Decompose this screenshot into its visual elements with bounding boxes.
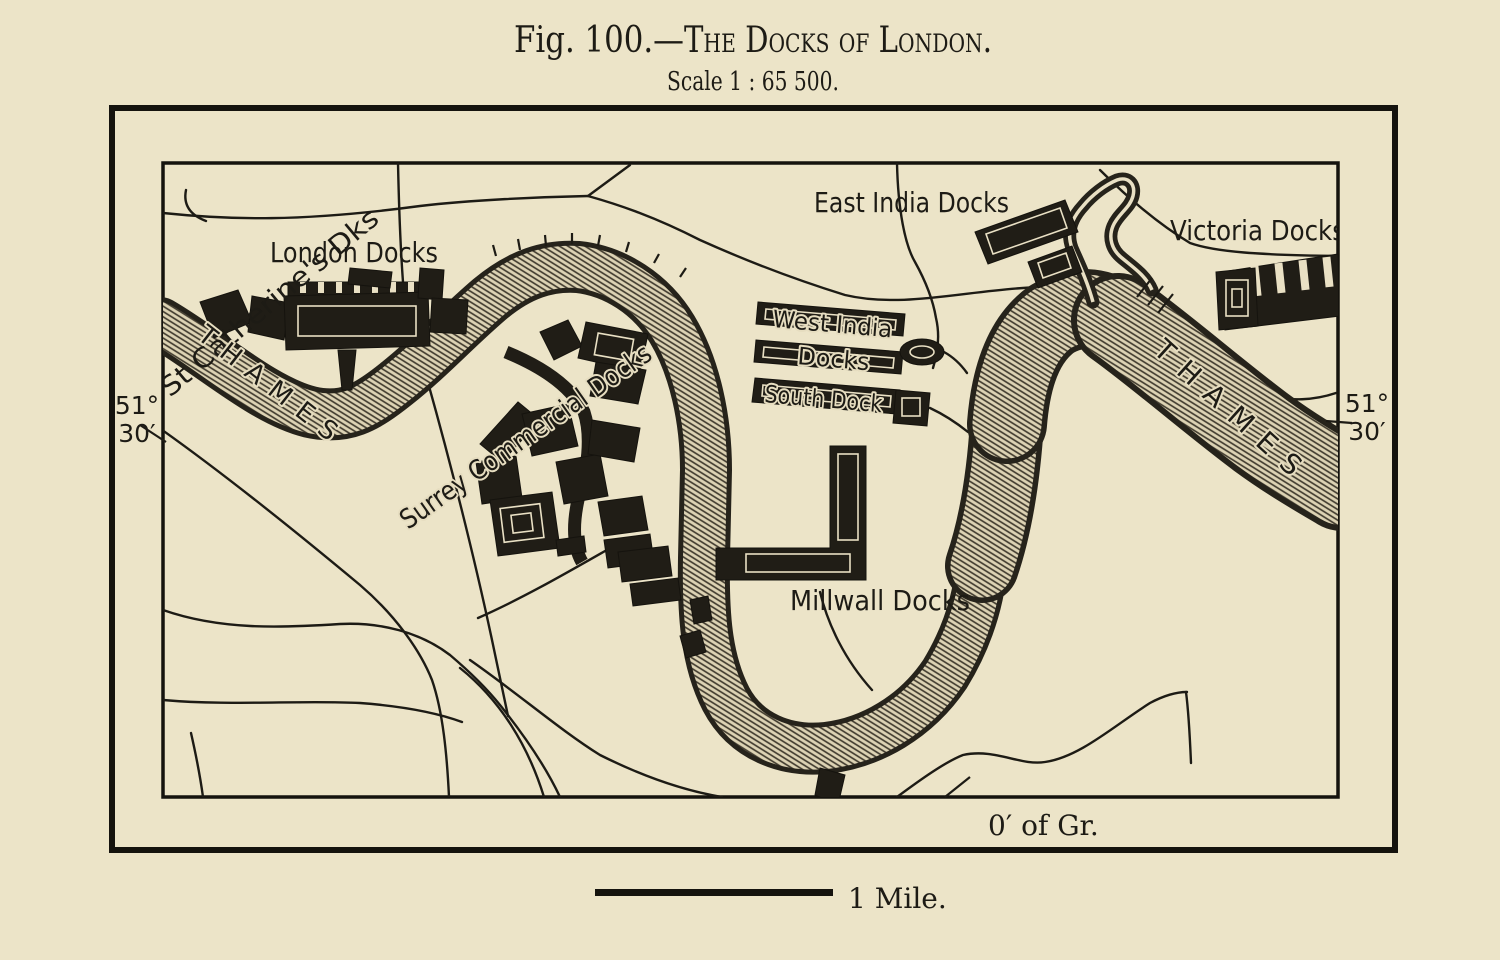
map-scale-caption: Scale 1 : 65 500. (667, 67, 839, 97)
meridian-label: 0′ of Gr. (988, 809, 1099, 842)
lat-right-minutes: 30′ (1348, 417, 1386, 446)
label-millwall-docks: Millwall Docks (790, 584, 970, 617)
label-victoria-docks: Victoria Docks (1170, 214, 1345, 247)
map-figure: Fig. 100.—The Docks of London. Scale 1 :… (0, 0, 1500, 960)
lat-right-degrees: 51° (1345, 389, 1389, 418)
figure-number: Fig. 100.— (514, 20, 684, 61)
scale-bar-label: 1 Mile. (848, 882, 947, 915)
figure-title: Fig. 100.—The Docks of London. (514, 20, 992, 61)
figure-title-text: The Docks of London. (684, 20, 992, 61)
label-east-india-docks: East India Docks (814, 186, 1009, 219)
lat-left-degrees: 51° (115, 391, 159, 420)
lat-left-minutes: 30′ (118, 419, 156, 448)
scale-bar-line (595, 889, 833, 896)
label-london-docks: London Docks (270, 236, 438, 269)
